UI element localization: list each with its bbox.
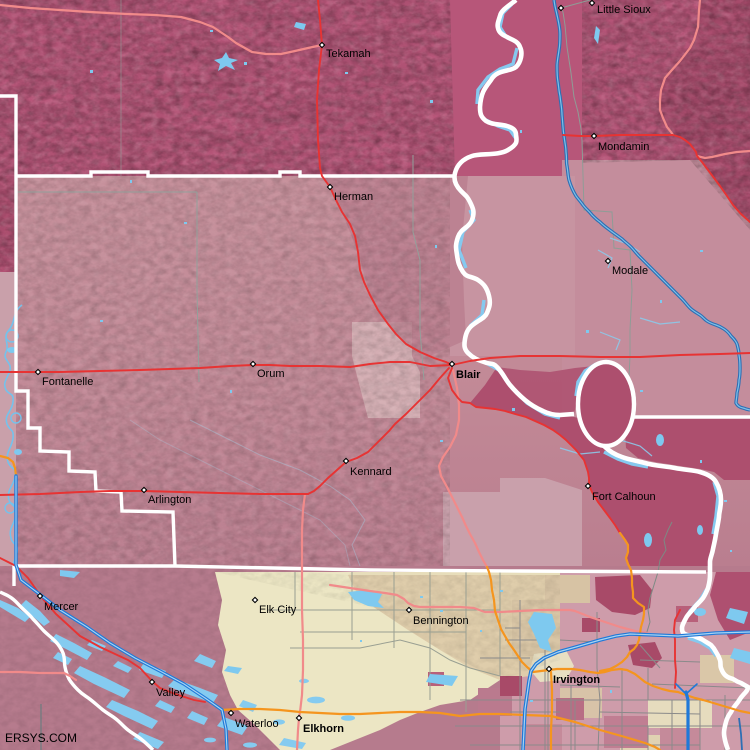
svg-text:Tekamah: Tekamah bbox=[326, 48, 371, 60]
svg-text:Fontanelle: Fontanelle bbox=[42, 376, 93, 388]
svg-text:Irvington: Irvington bbox=[553, 674, 600, 686]
svg-text:Orum: Orum bbox=[257, 368, 285, 380]
svg-text:Little Sioux: Little Sioux bbox=[597, 4, 651, 16]
svg-text:Bennington: Bennington bbox=[413, 615, 469, 627]
svg-text:Arlington: Arlington bbox=[148, 494, 191, 506]
svg-text:Kennard: Kennard bbox=[350, 466, 392, 478]
svg-text:Waterloo: Waterloo bbox=[235, 718, 279, 730]
svg-text:ERSYS.COM: ERSYS.COM bbox=[5, 731, 77, 745]
svg-text:Modale: Modale bbox=[612, 265, 648, 277]
svg-text:Valley: Valley bbox=[156, 687, 186, 699]
svg-text:Mercer: Mercer bbox=[44, 601, 79, 613]
svg-text:Fort Calhoun: Fort Calhoun bbox=[592, 491, 656, 503]
svg-text:Mondamin: Mondamin bbox=[598, 141, 649, 153]
svg-text:Herman: Herman bbox=[334, 191, 373, 203]
svg-text:Blair: Blair bbox=[456, 369, 481, 381]
svg-text:Elkhorn: Elkhorn bbox=[303, 723, 344, 735]
svg-text:Elk City: Elk City bbox=[259, 604, 297, 616]
